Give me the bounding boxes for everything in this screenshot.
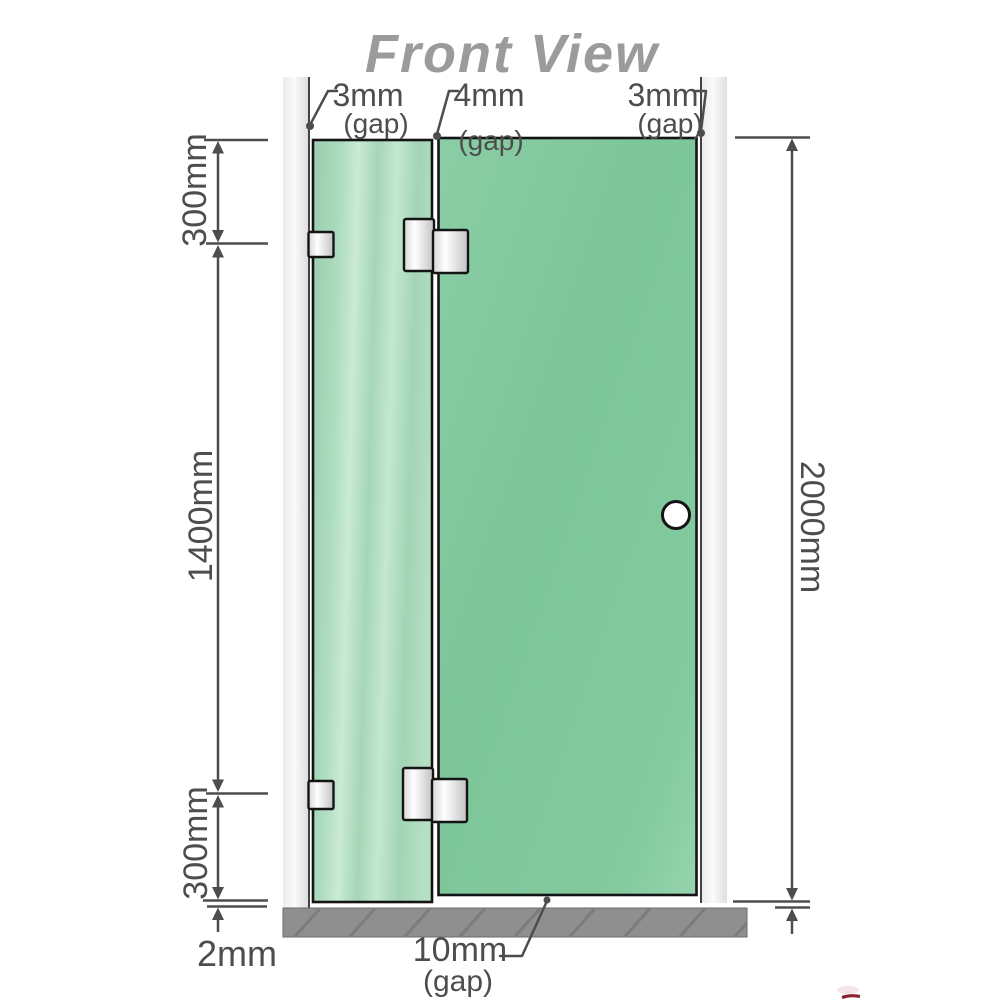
dim-label-2mm: 2mm (197, 933, 277, 974)
leader-dot (544, 897, 551, 904)
upper-hinge-door-plate (433, 230, 468, 273)
logo-mark-stroke (842, 996, 860, 998)
arrowhead (212, 908, 224, 921)
upper-hinge-fixed-plate (404, 219, 434, 271)
shower-screen-front-view-svg: Front View (0, 0, 1000, 1000)
dim-label-2000mm: 2000mm (793, 461, 831, 593)
door-glass-panel (439, 138, 697, 895)
right-dimension: 2000mm (733, 138, 831, 935)
leader-dot (306, 122, 314, 130)
dim-label-lower-300mm: 300mm (177, 786, 215, 899)
door-handle-knob (663, 502, 690, 529)
floor-base (283, 904, 764, 942)
upper-wall-bracket (309, 232, 334, 257)
arrowhead (786, 139, 798, 152)
lower-hinge-door-plate (432, 779, 467, 822)
gap-label-middle-value: 4mm (453, 77, 524, 113)
gap-label-left-qualifier: (gap) (343, 108, 408, 139)
left-wall-channel (283, 77, 308, 908)
arrowhead (786, 888, 798, 901)
gap-label-right-qualifier: (gap) (637, 108, 702, 139)
arrowhead (786, 909, 798, 922)
logo-mark-smudge (837, 986, 859, 994)
logo-mark-partial (837, 986, 860, 998)
front-view-diagram: Front View (0, 0, 1000, 1000)
dim-label-1400mm: 1400mm (182, 450, 220, 582)
left-dimension-stack: 300mm 1400mm 300mm 2mm (176, 133, 277, 974)
gap-label-bottom-qualifier: (gap) (423, 965, 493, 998)
gap-label-middle-qualifier: (gap) (458, 125, 523, 156)
lower-wall-bracket (309, 781, 334, 809)
gap-label-bottom-value: 10mm (413, 931, 507, 969)
lower-hinge-fixed-plate (403, 768, 433, 820)
right-wall-channel (702, 77, 727, 903)
page-title: Front View (365, 24, 660, 84)
leader-dot (433, 132, 441, 140)
dim-label-upper-300mm: 300mm (176, 133, 214, 246)
